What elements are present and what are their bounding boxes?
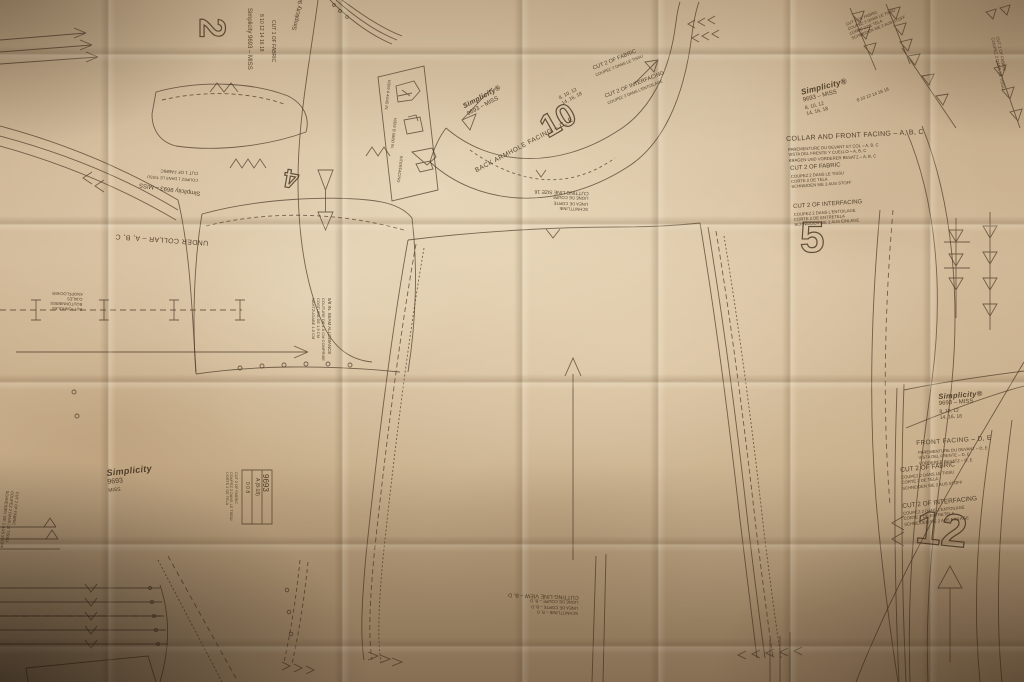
pattern-linework <box>0 0 1024 682</box>
seam-note-fr: COUTURE DE 1.5 CM COMPRISE <box>321 298 326 361</box>
micro-line: CORTE 2 DE TELA <box>224 472 229 520</box>
piece2-sizes: 8 10 12 14 16 18 <box>258 14 264 52</box>
piece12-brand-block: Simplicity® 9693 – MISS 8, 10, 12 14, 16… <box>938 389 984 421</box>
piece2-brand-line: Simplicity 9693 – MISS <box>245 8 253 70</box>
micro-line: COUPEZ 2 DANS LE TISSU <box>229 472 234 520</box>
seam-note-de: NAHTZUGABE 1.5 CM <box>311 298 316 361</box>
piece2-cut-note: CUT 1 OF FABRIC <box>270 20 276 62</box>
corner-brand-logo: Simplicity 9693 MISS <box>106 463 154 494</box>
piece5-cut-fabric: CUT 2 OF FABRIC COUPEZ 2 DANS LE TISSU C… <box>790 162 852 189</box>
seam-note: 5/8 IN. SEAM ALLOWANCE <box>326 298 332 361</box>
center-top-note: SCHNITTLINIE LINEA DE CORTE LIGNE DE COU… <box>534 188 589 212</box>
idbox-line2: 0 0 8 <box>244 482 250 493</box>
idbox-number: 9693 <box>260 474 270 492</box>
sewing-pattern-photo: 2 4 5 10 12 Simplicity 9693 – MISS 8 10 … <box>0 0 1024 682</box>
piece5-cut-interfacing: CUT 2 OF INTERFACING COUPEZ 2 DANS L'ENT… <box>793 199 864 227</box>
idbox-side-micro: CUT 2 OF FABRIC COUPEZ 2 DANS LE TISSU C… <box>224 472 238 520</box>
idbox-line1: A (8-18) <box>254 478 260 496</box>
micro-line: CUT 2 OF FABRIC <box>233 472 238 520</box>
buttonhole-labels: BUTTONHOLES BOUTONNIERES OJALES KNOPFLOC… <box>50 291 83 312</box>
center-cutting-line-block: SCHNITTLINIE – B, D LINEA DE CORTE – B, … <box>507 591 578 616</box>
seam-allowance-block: 5/8 IN. SEAM ALLOWANCE COUTURE DE 1.5 CM… <box>311 298 332 361</box>
buttonhole-label: KNOPFLOCHER <box>51 291 83 297</box>
piece-number-2: 2 <box>194 18 230 38</box>
